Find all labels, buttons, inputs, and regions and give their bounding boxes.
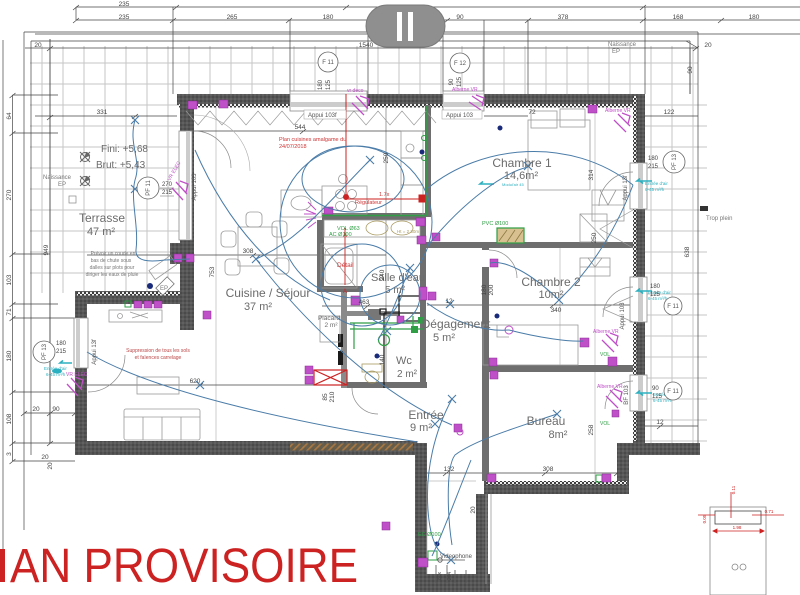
svg-text:et faïences carrelage: et faïences carrelage — [135, 355, 182, 361]
svg-text:0.71: 0.71 — [765, 509, 774, 514]
svg-text:2 m²: 2 m² — [397, 369, 418, 380]
svg-text:90: 90 — [449, 78, 455, 85]
svg-text:2 m²: 2 m² — [325, 322, 339, 329]
svg-text:215: 215 — [648, 164, 659, 170]
svg-text:Plan cuisines amalgame du: Plan cuisines amalgame du — [279, 137, 346, 143]
svg-text:949: 949 — [43, 244, 50, 255]
svg-text:180: 180 — [323, 14, 334, 21]
svg-text:AN PROVISOIRE: AN PROVISOIRE — [10, 540, 358, 593]
svg-text:EC Ø100: EC Ø100 — [418, 532, 441, 538]
svg-text:Appui 103: Appui 103 — [446, 113, 474, 119]
svg-text:3: 3 — [6, 452, 13, 456]
svg-text:140: 140 — [379, 354, 386, 365]
svg-text:1.7x: 1.7x — [379, 192, 390, 198]
svg-text:331: 331 — [97, 109, 108, 116]
svg-text:125: 125 — [652, 394, 663, 400]
svg-text:71: 71 — [6, 308, 13, 316]
svg-text:Appui 103: Appui 103 — [192, 173, 198, 201]
svg-text:VOL: VOL — [600, 352, 610, 358]
svg-text:80x: 80x — [437, 571, 443, 580]
svg-text:14,6m²: 14,6m² — [504, 170, 539, 182]
svg-text:265: 265 — [227, 14, 238, 21]
svg-text:122: 122 — [664, 109, 675, 116]
svg-text:0.11: 0.11 — [731, 485, 736, 494]
svg-text:AC Ø100: AC Ø100 — [329, 232, 352, 238]
svg-text:Chambre 2: Chambre 2 — [521, 275, 581, 289]
svg-text:250: 250 — [383, 152, 390, 163]
svg-text:Alberne VR: Alberne VR — [452, 87, 478, 93]
svg-text:108: 108 — [6, 413, 13, 424]
svg-text:6-45 m³/h: 6-45 m³/h — [645, 187, 665, 192]
svg-text:Appui 13f: Appui 13f — [623, 175, 629, 201]
svg-text:620: 620 — [190, 378, 201, 385]
svg-text:VOL: VOL — [600, 421, 610, 427]
svg-text:Alberne VR: Alberne VR — [593, 329, 619, 335]
svg-text:vr deco: vr deco — [347, 88, 364, 94]
svg-text:215: 215 — [162, 190, 173, 196]
svg-text:180: 180 — [56, 341, 67, 347]
svg-text:103: 103 — [6, 274, 13, 285]
svg-text:Bureau: Bureau — [527, 414, 566, 428]
svg-text:PF 13: PF 13 — [42, 343, 48, 360]
svg-text:12: 12 — [656, 419, 664, 426]
svg-text:dalles sur plots pour: dalles sur plots pour — [90, 265, 135, 271]
svg-text:180: 180 — [6, 350, 13, 361]
svg-text:125: 125 — [457, 76, 463, 87]
svg-text:20: 20 — [41, 454, 49, 461]
svg-text:EP: EP — [58, 182, 66, 188]
svg-text:Détail: Détail — [337, 262, 354, 269]
svg-text:90: 90 — [687, 66, 694, 74]
svg-text:270: 270 — [6, 189, 13, 200]
svg-text:Trop plein: Trop plein — [706, 216, 732, 222]
svg-text:20: 20 — [704, 42, 712, 49]
svg-text:235: 235 — [119, 14, 130, 21]
svg-text:1.98: 1.98 — [733, 525, 742, 530]
svg-text:314: 314 — [588, 169, 595, 180]
svg-text:215: 215 — [56, 349, 67, 355]
svg-text:72: 72 — [528, 109, 536, 116]
svg-text:12: 12 — [445, 298, 453, 305]
svg-text:Entrée: Entrée — [408, 408, 444, 422]
svg-text:Naissance: Naissance — [608, 42, 637, 48]
svg-text:Modul'air 45: Modul'air 45 — [502, 182, 524, 187]
svg-text:235: 235 — [119, 1, 130, 8]
svg-text:20: 20 — [470, 506, 477, 514]
svg-text:378: 378 — [558, 14, 569, 21]
svg-text:132: 132 — [444, 466, 455, 473]
svg-text:5 m²: 5 m² — [433, 332, 455, 344]
svg-text:180: 180 — [749, 14, 760, 21]
svg-text:90: 90 — [456, 14, 464, 21]
svg-text:9 m²: 9 m² — [410, 422, 432, 434]
svg-text:PF 11: PF 11 — [146, 180, 152, 196]
svg-text:Entrée d'air: Entrée d'air — [44, 366, 67, 371]
svg-text:Naissance: Naissance — [43, 175, 72, 181]
svg-text:47 m²: 47 m² — [87, 226, 115, 238]
svg-text:Entrée d'air: Entrée d'air — [645, 181, 668, 186]
svg-text:Videophone: Videophone — [440, 554, 473, 560]
svg-text:8m²: 8m² — [549, 429, 568, 441]
svg-text:24/07/2018: 24/07/2018 — [279, 144, 307, 150]
svg-text:463: 463 — [359, 299, 370, 306]
svg-text:Alberne VR: Alberne VR — [605, 108, 631, 114]
svg-text:258: 258 — [588, 424, 595, 435]
svg-text:544: 544 — [295, 124, 306, 131]
svg-text:A: A — [343, 289, 347, 295]
svg-text:Appui 13f: Appui 13f — [92, 339, 98, 365]
svg-text:Cuisine / Séjour: Cuisine / Séjour — [226, 286, 311, 300]
svg-text:180: 180 — [650, 284, 661, 290]
svg-text:F 12: F 12 — [454, 61, 467, 67]
svg-text:210: 210 — [329, 391, 336, 402]
svg-text:Brut: +5,43: Brut: +5,43 — [96, 160, 146, 171]
svg-text:90: 90 — [652, 386, 659, 392]
svg-text:Terrasse: Terrasse — [79, 211, 125, 225]
svg-text:6-45 m³/h: 6-45 m³/h — [46, 372, 66, 377]
svg-text:Fini: +5,68: Fini: +5,68 — [101, 144, 148, 155]
svg-text:1540: 1540 — [359, 42, 374, 49]
svg-text:Prévoir un coude en: Prévoir un coude en — [91, 251, 136, 257]
svg-text:308: 308 — [543, 466, 554, 473]
svg-text:180: 180 — [481, 284, 488, 295]
svg-text:64: 64 — [6, 112, 13, 120]
svg-text:bas de chute sous: bas de chute sous — [91, 258, 132, 264]
svg-text:Chambre 1: Chambre 1 — [492, 156, 552, 170]
svg-text:EP: EP — [612, 49, 620, 55]
svg-text:F 11: F 11 — [667, 304, 679, 310]
svg-text:0.05: 0.05 — [702, 514, 707, 523]
svg-text:168: 168 — [673, 14, 684, 21]
svg-text:125: 125 — [650, 292, 661, 298]
svg-text:F 11: F 11 — [667, 389, 679, 395]
svg-text:200: 200 — [488, 284, 495, 295]
svg-text:PVC Ø100: PVC Ø100 — [482, 221, 508, 227]
svg-text:250: 250 — [591, 232, 598, 243]
svg-text:EP: EP — [160, 286, 168, 292]
svg-text:308: 308 — [243, 248, 254, 255]
svg-text:37 m²: 37 m² — [244, 301, 272, 313]
svg-text:10m²: 10m² — [538, 289, 563, 301]
svg-text:Appui 103f: Appui 103f — [308, 113, 337, 119]
svg-text:Ht = 2.30m: Ht = 2.30m — [397, 229, 419, 234]
svg-text:753: 753 — [209, 266, 216, 277]
svg-text:340: 340 — [551, 307, 562, 314]
svg-text:180: 180 — [648, 156, 659, 162]
svg-text:Suppression de tous les sols: Suppression de tous les sols — [126, 348, 190, 354]
svg-text:5 m²: 5 m² — [385, 285, 406, 296]
svg-text:diriger les eaux de pluie: diriger les eaux de pluie — [86, 272, 139, 278]
svg-text:90: 90 — [52, 406, 60, 413]
svg-text:204: 204 — [447, 572, 453, 581]
svg-text:638: 638 — [684, 246, 691, 257]
svg-text:125: 125 — [326, 79, 332, 90]
svg-text:85: 85 — [322, 393, 329, 401]
svg-text:20: 20 — [34, 42, 42, 49]
svg-text:VR ELEC: VR ELEC — [66, 372, 88, 378]
svg-text:20: 20 — [32, 406, 40, 413]
svg-text:PF 13: PF 13 — [672, 153, 678, 170]
svg-text:Placard: Placard — [318, 315, 340, 322]
svg-text:Régulateur: Régulateur — [355, 200, 382, 206]
svg-text:Alberne VR: Alberne VR — [597, 384, 623, 390]
svg-text:F 11: F 11 — [322, 60, 334, 66]
svg-text:240: 240 — [379, 269, 386, 280]
svg-text:Wc: Wc — [396, 355, 412, 367]
svg-text:Appui 103: Appui 103 — [620, 302, 626, 330]
svg-text:Dégagement: Dégagement — [422, 317, 491, 331]
svg-text:20: 20 — [47, 462, 54, 470]
svg-text:270: 270 — [162, 182, 173, 188]
svg-text:BF 103: BF 103 — [624, 385, 630, 405]
svg-text:180: 180 — [318, 79, 324, 90]
